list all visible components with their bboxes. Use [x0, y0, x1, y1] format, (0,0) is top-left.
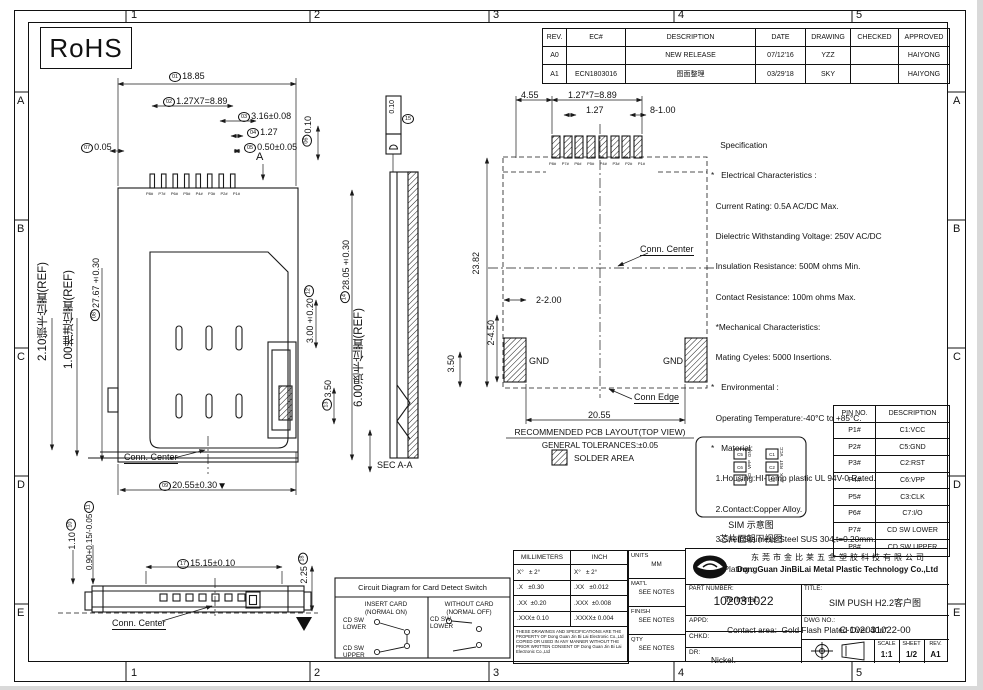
- top-view-pin-labels: P8#P7#P6#P5#P4#P3#P2#P1#: [146, 191, 240, 196]
- company-name-en: DongGuan JinBiLai Metal Plastic Technolo…: [728, 565, 947, 574]
- company-logo: [691, 554, 729, 580]
- matl-cell: MAT'LSEE NOTES: [628, 579, 685, 607]
- rev-header-cell: REV.: [543, 29, 567, 47]
- sim-pad-name: VPP: [747, 460, 752, 469]
- pin-header-cell: DESCRIPTION: [876, 406, 949, 423]
- zone-row: A: [17, 95, 24, 107]
- rev-header-cell: DESCRIPTION: [626, 29, 756, 47]
- spec-line: Insulation Resistance: 500M ohms Min.: [711, 261, 963, 271]
- rev-cell: ECN1803016: [567, 65, 626, 83]
- pin-cell: C7:I/O: [876, 506, 949, 523]
- insert-card-header: INSERT CARD: [347, 601, 425, 608]
- section-arrow-label: A: [256, 152, 263, 162]
- spec-line: Solder area: 80u" Tin Plated Over 40u" N…: [711, 685, 963, 686]
- front-conn-center-label: Conn. Center: [112, 618, 166, 630]
- rohs-mark: RoHS: [40, 27, 132, 69]
- dim-overall-width: 0118.85: [168, 71, 205, 82]
- critical-dim-marker: ▼: [217, 481, 227, 492]
- rev-cell: A1: [543, 65, 567, 83]
- dim-1-10: 1.1010: [66, 518, 77, 550]
- rev-header-cell: CHECKED: [851, 29, 899, 47]
- zone-row: E: [17, 607, 24, 619]
- pin-cell: C6:VPP: [876, 473, 949, 490]
- dim-0-05: 070.05: [80, 142, 112, 153]
- spec-line: *Mechanical Characteristics:: [711, 322, 963, 332]
- pin-cell: C3:CLK: [876, 489, 949, 506]
- cd-sw-upper-label: CD SWUPPER: [343, 645, 365, 659]
- balloon: 12: [304, 285, 314, 297]
- dr-label: DR:: [689, 649, 700, 656]
- dim-pin-width: 050.50±0.05: [243, 142, 297, 153]
- cd-sw-lower-label: CD SWLOWER: [430, 616, 453, 630]
- pin-cell: P7#: [834, 523, 876, 540]
- balloon: 02: [163, 97, 175, 107]
- title-value: SIM PUSH H2.2客户图: [801, 596, 949, 609]
- balloon: 10: [66, 519, 76, 531]
- tol-cell: .X ±0.30: [514, 581, 571, 597]
- dim-3-50: 133.50: [322, 380, 333, 412]
- title-block: 东莞市金比莱五金塑胶科技有限公司 DongGuan JinBiLai Metal…: [685, 548, 948, 662]
- tol-cell: X° ± 2°: [514, 565, 571, 581]
- tol-header-cell: MILLIMETERS: [514, 551, 571, 565]
- rev-cell: HAIYONG: [899, 65, 949, 83]
- sim-pad-id: C2: [766, 462, 778, 472]
- rev-value: A1: [924, 650, 947, 659]
- rev-cell: 07/12'16: [756, 47, 806, 65]
- conn-center-label: Conn. Center: [124, 452, 178, 464]
- rev-label: REV.: [924, 641, 947, 647]
- dim-2-25: 2.2518: [298, 552, 309, 584]
- pcb-pad-labels: P8#P7#P6#P5#P4#P3#P2#P1#: [549, 161, 645, 166]
- part-number-value: 102031022: [686, 594, 801, 608]
- conn-edge-label: Conn Edge: [634, 392, 679, 404]
- pin-cell: P6#: [834, 506, 876, 523]
- rev-cell: 图面整理: [626, 65, 756, 83]
- zone-row: D: [17, 479, 25, 491]
- dim-15-15: 1715.15±0.10: [176, 558, 235, 569]
- sheet-value: 1/2: [899, 650, 924, 659]
- dim-pitch: 041.27: [246, 127, 278, 138]
- units-block: UNITSMM MAT'LSEE NOTES FINISHSEE NOTES Q…: [627, 550, 686, 662]
- dim-20-55: 0920.55±0.30▼: [158, 480, 227, 492]
- zone-row: A: [953, 95, 960, 107]
- rev-cell: [851, 65, 899, 83]
- rev-cell: 03/29'18: [756, 65, 806, 83]
- tol-cell: .XXXX± 0.004: [571, 612, 628, 628]
- zone-col: 2: [314, 667, 320, 679]
- drawing-sheet: 1 2 3 4 5 1 2 3 4 5 A B C D E A B C D E …: [0, 0, 977, 686]
- tolerance-table: MILLIMETERS INCH X° ± 2° X° ± 2° .X ±0.3…: [513, 550, 629, 664]
- pin-cell: C5:GND: [876, 439, 949, 456]
- sheet-label: SHEET: [899, 641, 924, 647]
- dim-eject-position: 6.00退卡位置(REF): [354, 308, 364, 407]
- projection-symbol: [808, 641, 870, 661]
- zone-col: 5: [856, 9, 862, 21]
- pin-header-cell: PIN NO.: [834, 406, 876, 423]
- pcb-dim-pitch: 1.27: [586, 105, 604, 115]
- gnd-pad-label: GND: [529, 356, 549, 366]
- dim-3-16: 033.16±0.08: [237, 111, 291, 122]
- balloon: 01: [169, 72, 181, 82]
- units-cell: UNITSMM: [628, 551, 685, 579]
- dim-3-00: 3.00±0.2012: [304, 284, 315, 343]
- without-card-header: WITHOUT CARD: [432, 601, 506, 608]
- spec-line: Current Rating: 0.5A AC/DC Max.: [711, 201, 963, 211]
- balloon: 11: [84, 501, 94, 513]
- balloon: 18: [298, 553, 308, 565]
- chkd-label: CHKD:: [689, 633, 709, 640]
- rev-cell: [851, 47, 899, 65]
- part-number-label: PART NUMBER:: [689, 586, 734, 592]
- pcb-dim-20-55: 20.55: [588, 410, 611, 420]
- spec-line: Mating Cyeles: 5000 Insertions.: [711, 352, 963, 362]
- pin-cell: C1:VCC: [876, 423, 949, 440]
- cd-sw-lower-label: CD SWLOWER: [343, 617, 366, 631]
- circuit-diagram-title: Circuit Diagram for Card Detect Switch: [337, 583, 508, 593]
- zone-col: 3: [493, 667, 499, 679]
- balloon: 03: [238, 112, 250, 122]
- sim-pad-id: C5: [734, 449, 746, 459]
- fcf-value: 0.10: [388, 100, 398, 114]
- without-card-subheader: (NORMAL OFF): [432, 609, 506, 616]
- rev-cell: HAIYONG: [899, 47, 949, 65]
- pin-cell: P3#: [834, 456, 876, 473]
- zone-col: 1: [131, 9, 137, 21]
- rev-cell: SKY: [806, 65, 851, 83]
- tol-cell: .XX ±0.012: [571, 581, 628, 597]
- spec-line: Contact Resistance: 100m ohms Max.: [711, 292, 963, 302]
- zone-col: 4: [678, 667, 684, 679]
- spec-line: Specification: [711, 140, 963, 150]
- balloon: 17: [177, 559, 189, 569]
- balloon: 04: [247, 128, 259, 138]
- tol-cell: .XXX ±0.008: [571, 596, 628, 612]
- section-view-label: SEC A-A: [377, 460, 413, 470]
- balloon: 08: [90, 309, 100, 321]
- pcb-dim-3-50: 3.50: [446, 355, 456, 373]
- appd-label: APPD:: [689, 617, 709, 624]
- dwg-no-value: C-102031022-00: [801, 625, 949, 636]
- zone-col: 4: [678, 9, 684, 21]
- rev-header-cell: DATE: [756, 29, 806, 47]
- rev-cell: NEW RELEASE: [626, 47, 756, 65]
- sim-pad-id: C6: [734, 462, 746, 472]
- pcb-dim-4-55: 4.55: [521, 90, 539, 100]
- dim-0-10: 060.10: [302, 116, 313, 148]
- sim-pad-id: C3: [766, 475, 778, 485]
- pcb-dim-pad-width: 8-1.00: [650, 105, 676, 115]
- rev-cell: A0: [543, 47, 567, 65]
- rev-cell: [567, 47, 626, 65]
- balloon: 05: [244, 143, 256, 153]
- sim-diagram-subcaption: 芯片面朝下视图: [701, 534, 801, 544]
- balloon: 07: [81, 143, 93, 153]
- balloon: 06: [302, 135, 312, 147]
- pcb-dim-2-4-50: 2-4.50: [486, 320, 496, 346]
- sim-pad-id: C1: [766, 449, 778, 459]
- zone-row: C: [17, 351, 25, 363]
- property-note: THESE DRAWINGS AND SPECIFICATIONS ARE TH…: [514, 627, 628, 663]
- rev-header-cell: DRAWING: [806, 29, 851, 47]
- pin-cell: CD SW LOWER: [876, 523, 949, 540]
- dwg-no-label: DWG NO.:: [804, 617, 835, 624]
- tol-header-cell: INCH: [571, 551, 628, 565]
- tol-cell: X° ± 2°: [571, 565, 628, 581]
- company-name-cn: 东莞市金比莱五金塑胶科技有限公司: [732, 552, 946, 563]
- zone-col: 2: [314, 9, 320, 21]
- dim-28-05: 1428.05±0.30: [340, 240, 351, 304]
- pin-cell: C2:RST: [876, 456, 949, 473]
- spec-line: * Electrical Characteristics :: [711, 170, 963, 180]
- spec-line: * Environmental :: [711, 382, 963, 392]
- pin-cell: P5#: [834, 489, 876, 506]
- solder-area-legend: SOLDER AREA: [574, 453, 634, 463]
- balloon: 09: [159, 481, 171, 491]
- balloon: 14: [340, 291, 350, 303]
- scale-label: SCALE: [874, 641, 899, 647]
- sim-pad-name: VCC: [779, 447, 784, 457]
- sim-pad-name: I/O: [747, 473, 752, 479]
- pin-cell: P4#: [834, 473, 876, 490]
- pcb-layout-title: RECOMMENDED PCB LAYOUT(TOP VIEW): [504, 427, 696, 437]
- balloon: 13: [322, 399, 332, 411]
- finish-cell: FINISHSEE NOTES: [628, 607, 685, 635]
- sim-pad-name: RST: [779, 460, 784, 469]
- sim-pad-id: C7: [734, 475, 746, 485]
- rev-cell: YZZ: [806, 47, 851, 65]
- tol-cell: .XXX± 0.10: [514, 612, 571, 628]
- gnd-pad-label: GND: [663, 356, 683, 366]
- sim-diagram-caption: SIM 示意图: [706, 520, 796, 530]
- zone-col: 3: [493, 9, 499, 21]
- pin-table: PIN NO. DESCRIPTION P1# C1:VCC P2# C5:GN…: [833, 405, 950, 557]
- dim-push-position: 1.00推进位置(REF): [64, 270, 74, 369]
- pin-cell: P1#: [834, 423, 876, 440]
- tol-cell: .XX ±0.20: [514, 596, 571, 612]
- pin-cell: P2#: [834, 439, 876, 456]
- rev-header-cell: EC#: [567, 29, 626, 47]
- revision-table: REV. EC# DESCRIPTION DATE DRAWING CHECKE…: [542, 28, 950, 84]
- zone-row: B: [17, 223, 24, 235]
- insert-card-subheader: (NORMAL ON): [347, 609, 425, 616]
- pcb-conn-center-label: Conn. Center: [640, 244, 694, 256]
- title-label: TITLE:: [804, 586, 822, 592]
- dim-27-67: 0827.67±0.30: [90, 258, 101, 322]
- dim-0-90: 0.90+0.15/-0.0511: [84, 500, 95, 570]
- spec-line: Dielectric Withstanding Voltage: 250V AC…: [711, 231, 963, 241]
- sim-pad-name: GND: [747, 447, 752, 457]
- pcb-general-tolerance: GENERAL TOLERANCES:±0.05: [504, 441, 696, 451]
- qty-cell: QTYSEE NOTES: [628, 635, 685, 662]
- rev-header-cell: APPROVED: [899, 29, 949, 47]
- dim-pin-pitch-total: 021.27X7=8.89: [162, 96, 227, 107]
- pcb-dim-23-82: 23.82: [471, 252, 481, 275]
- fcf-balloon: 15: [401, 108, 415, 126]
- zone-col: 1: [131, 667, 137, 679]
- pcb-dim-pitch-total: 1.27*7=8.89: [568, 90, 617, 100]
- dim-lock-position: 2.10锁卡位置(REF): [38, 262, 48, 361]
- sim-pad-name: CLK: [779, 473, 784, 482]
- pcb-dim-2-2-00: 2-2.00: [536, 295, 562, 305]
- scale-value: 1:1: [874, 650, 899, 659]
